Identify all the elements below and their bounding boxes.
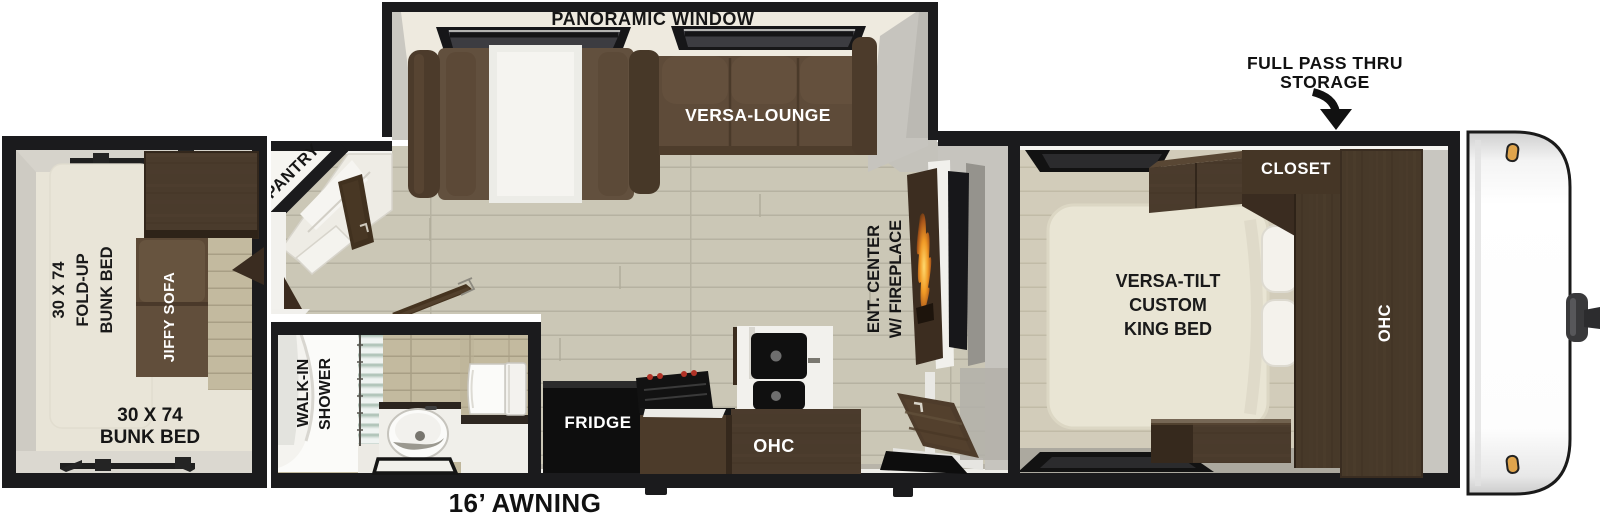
svg-text:KING BED: KING BED <box>1124 319 1212 339</box>
svg-text:CLOSET: CLOSET <box>1261 160 1331 178</box>
svg-text:STORAGE: STORAGE <box>1280 72 1370 92</box>
svg-text:SHOWER: SHOWER <box>317 358 334 430</box>
svg-text:JIFFY SOFA: JIFFY SOFA <box>161 272 178 363</box>
svg-text:FRIDGE: FRIDGE <box>564 413 631 432</box>
svg-text:16’ AWNING: 16’ AWNING <box>449 488 602 515</box>
svg-text:BUNK BED: BUNK BED <box>98 246 116 333</box>
svg-text:VERSA-LOUNGE: VERSA-LOUNGE <box>685 105 831 125</box>
svg-text:ENT. CENTER: ENT. CENTER <box>865 225 883 333</box>
svg-text:BUNK BED: BUNK BED <box>100 427 200 448</box>
svg-text:30 X 74: 30 X 74 <box>117 405 183 426</box>
svg-text:OHC: OHC <box>1376 304 1394 342</box>
svg-text:30 X 74: 30 X 74 <box>50 261 68 319</box>
svg-text:VERSA-TILT: VERSA-TILT <box>1116 271 1221 291</box>
svg-text:W/ FIREPLACE: W/ FIREPLACE <box>887 220 905 338</box>
svg-text:FULL PASS THRU: FULL PASS THRU <box>1247 53 1403 73</box>
svg-text:WALK-IN: WALK-IN <box>295 359 312 427</box>
svg-text:CUSTOM: CUSTOM <box>1129 295 1207 315</box>
svg-text:FOLD-UP: FOLD-UP <box>74 253 92 326</box>
svg-text:OHC: OHC <box>753 436 795 456</box>
